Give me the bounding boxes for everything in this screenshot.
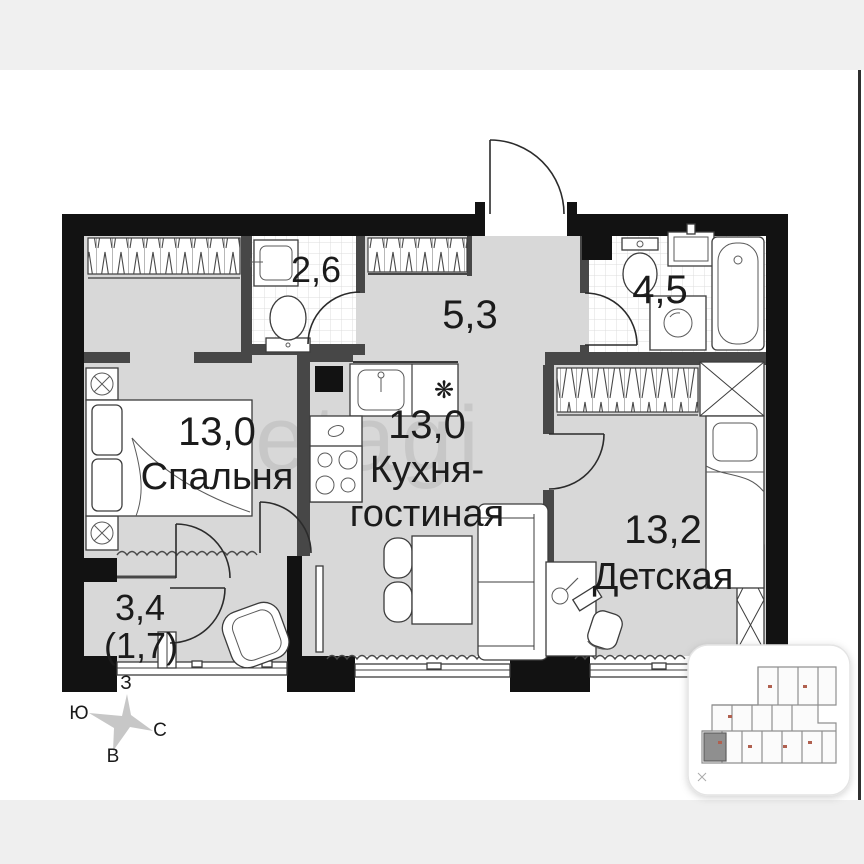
floor-plan-svg: etagi [0, 0, 864, 864]
bedroom-area-label: 13,0 [178, 410, 256, 454]
children-x-wardrobe [700, 362, 764, 416]
right-edge-line [858, 70, 861, 800]
fridge-symbol: ❋ [434, 377, 454, 404]
compass-east: В [107, 746, 120, 767]
children-closet [557, 368, 698, 415]
hallway-area-label: 5,3 [442, 293, 498, 337]
windows [117, 661, 700, 677]
bath-area-label: 4,5 [632, 268, 688, 312]
compass-south: Ю [69, 703, 88, 724]
bottom-band [0, 800, 864, 864]
kitchen-area-label: 13,0 [388, 403, 466, 447]
building-minimap-card[interactable] [688, 645, 850, 795]
living-window [355, 663, 510, 677]
wc-area-label: 2,6 [291, 249, 341, 290]
nightstand-lamp-bottom [86, 516, 118, 550]
children-name-label: Детская [593, 556, 734, 598]
tv-console [316, 566, 323, 652]
bathtub [712, 237, 764, 350]
nightstand-lamp-top [86, 368, 118, 400]
top-band [0, 0, 864, 70]
children-window [590, 663, 700, 677]
hallway-closet [368, 238, 467, 272]
floor-plan-page: etagi [0, 0, 864, 864]
bedroom-name-label: Спальня [141, 456, 294, 498]
loggia-area-label: 3,4 [115, 587, 165, 628]
kitchen-name-line1: Кухня- [370, 449, 484, 491]
compass-north: С [153, 720, 167, 741]
highlighted-unit [704, 733, 726, 761]
compass-west: З [120, 673, 131, 694]
kitchen-name-line2: гостиная [350, 493, 505, 535]
bedroom-closet [88, 238, 240, 278]
children-area-label: 13,2 [624, 508, 702, 552]
loggia-area-secondary-label: (1,7) [104, 625, 178, 666]
